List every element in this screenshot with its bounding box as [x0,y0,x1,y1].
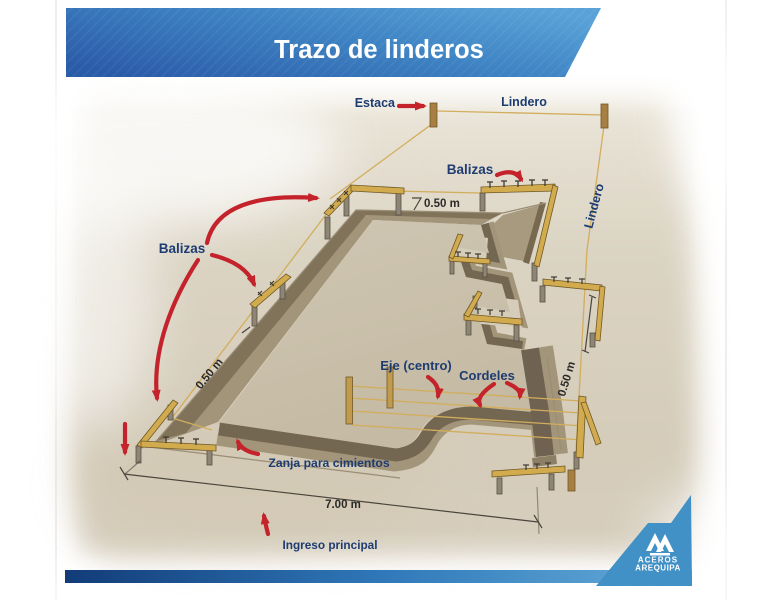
svg-text:Estaca: Estaca [355,96,396,110]
svg-text:Cordeles: Cordeles [459,368,515,383]
svg-text:7.00 m: 7.00 m [325,499,361,511]
svg-text:Zanja para cimientos: Zanja para cimientos [268,456,389,470]
svg-text:Ingreso principal: Ingreso principal [282,538,377,552]
svg-text:Eje (centro): Eje (centro) [380,358,452,373]
svg-text:0.50 m: 0.50 m [424,198,460,210]
svg-text:Lindero: Lindero [501,95,547,109]
svg-text:Trazo de linderos: Trazo de linderos [274,36,484,64]
svg-text:Balizas: Balizas [159,241,206,256]
svg-text:AREQUIPA: AREQUIPA [635,564,681,573]
svg-text:Balizas: Balizas [447,162,494,177]
